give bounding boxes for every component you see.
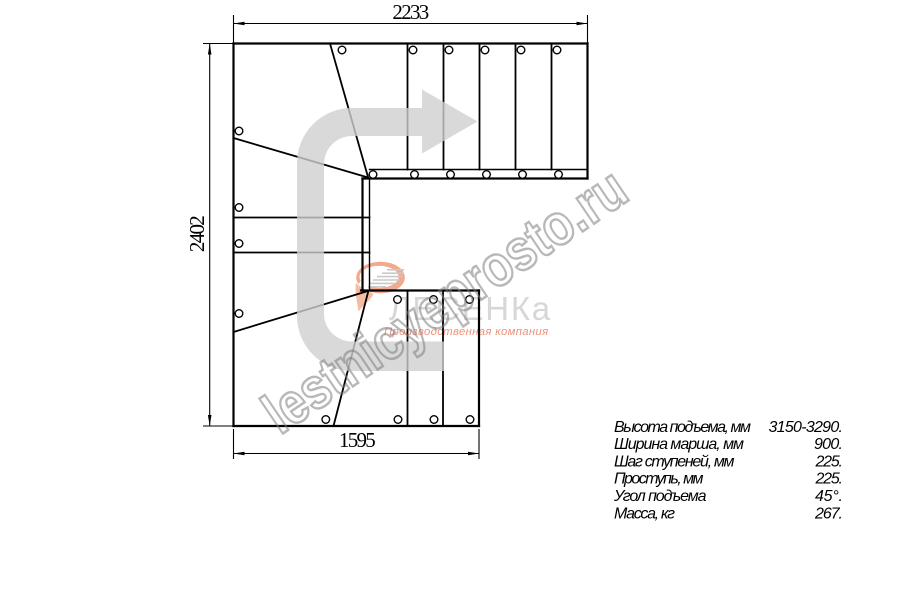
- svg-text:Проступь, мм: Проступь, мм: [614, 471, 704, 488]
- svg-text:225.: 225.: [815, 453, 844, 470]
- svg-text:45°.: 45°.: [815, 488, 843, 505]
- svg-text:2402: 2402: [185, 216, 209, 252]
- svg-text:1595: 1595: [339, 428, 375, 452]
- svg-text:Масса, кг: Масса, кг: [614, 505, 675, 522]
- svg-text:225.: 225.: [815, 471, 844, 488]
- svg-text:267.: 267.: [814, 505, 843, 522]
- svg-text:Высота подъема, мм: Высота подъема, мм: [614, 419, 751, 436]
- svg-text:3150-3290.: 3150-3290.: [769, 419, 844, 436]
- svg-text:Ширина марша, мм: Ширина марша, мм: [614, 436, 744, 453]
- svg-text:2233: 2233: [392, 0, 428, 24]
- svg-text:900.: 900.: [814, 436, 843, 453]
- svg-text:Угол подъема: Угол подъема: [613, 488, 707, 505]
- svg-text:Шаг ступеней, мм: Шаг ступеней, мм: [614, 453, 735, 470]
